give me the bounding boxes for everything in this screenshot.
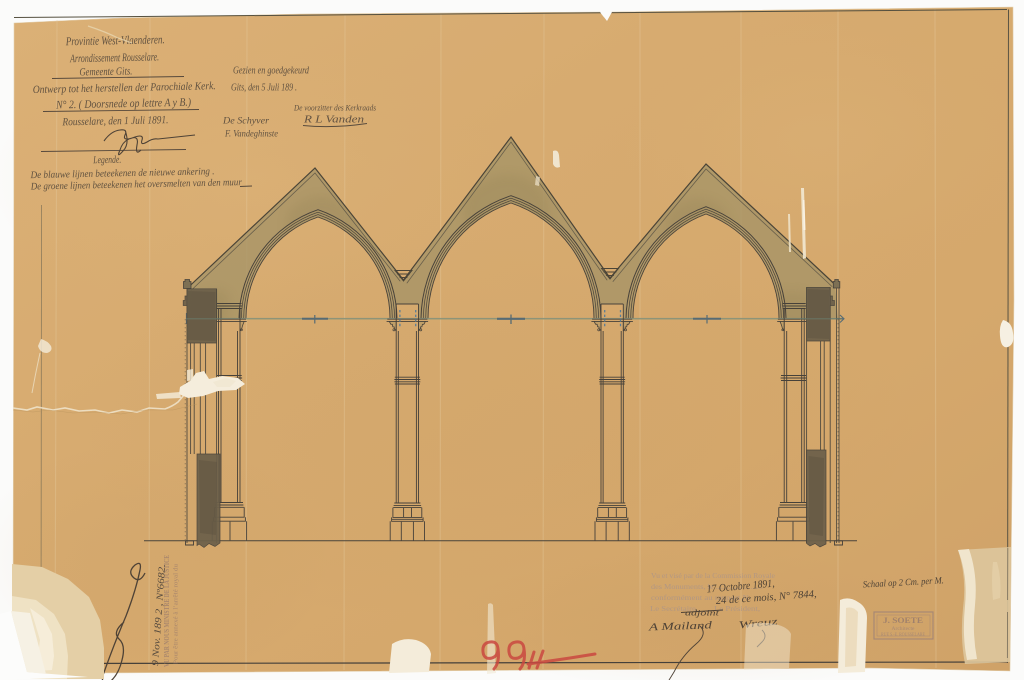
svg-text:adjoint: adjoint: [685, 608, 720, 618]
svg-text:Legende.: Legende.: [92, 155, 121, 167]
svg-text:R L Vanden: R L Vanden: [303, 115, 364, 126]
svg-text:De voorzitter des Kerkraads: De voorzitter des Kerkraads: [293, 103, 376, 113]
svg-text:F. Vandeghinste: F. Vandeghinste: [224, 129, 278, 139]
svg-text:De Schyver: De Schyver: [222, 117, 269, 127]
svg-text:Gezien en goedgekeurd: Gezien en goedgekeurd: [233, 66, 310, 77]
svg-text:Provintie West-Vlaenderen.: Provintie West-Vlaenderen.: [65, 32, 165, 48]
svg-text:J. SOETE: J. SOETE: [883, 615, 923, 625]
svg-text:Pour être annexé à l’arrêté ro: Pour être annexé à l’arrêté royal du: [174, 564, 180, 664]
svg-text:Arrondissement Rousselare.: Arrondissement Rousselare.: [69, 51, 159, 65]
svg-text:RUE S.-E. ROUSSELARE: RUE S.-E. ROUSSELARE: [881, 633, 925, 638]
svg-text:Gits, den 5 Juli 189 .: Gits, den 5 Juli 189 .: [231, 83, 297, 94]
svg-text:Architecte: Architecte: [892, 626, 915, 632]
svg-text:Gemeente Gits.: Gemeente Gits.: [79, 65, 132, 78]
svg-text:Rousselare, den 1 Juli 1891.: Rousselare, den 1 Juli 1891.: [61, 114, 168, 128]
